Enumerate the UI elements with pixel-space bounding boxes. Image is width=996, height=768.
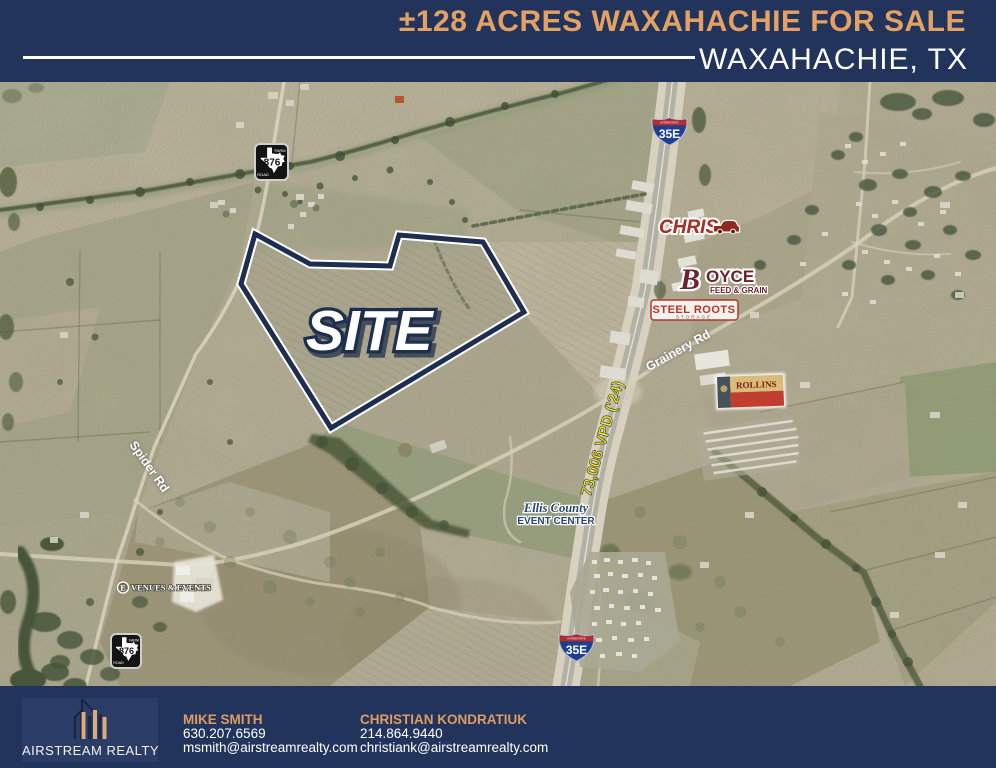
svg-text:CHRIS: CHRIS	[659, 217, 718, 238]
svg-text:VENUES & EVENTS: VENUES & EVENTS	[131, 583, 211, 593]
svg-text:ROLLINS: ROLLINS	[736, 379, 777, 390]
svg-text:35E: 35E	[659, 127, 680, 141]
svg-text:ROAD: ROAD	[113, 661, 124, 665]
svg-text:876: 876	[119, 646, 134, 656]
svg-text:Ellis County: Ellis County	[523, 501, 589, 515]
svg-text:STORAGE: STORAGE	[676, 315, 712, 320]
svg-text:E: E	[120, 584, 125, 593]
svg-text:INTERSTATE: INTERSTATE	[567, 637, 585, 641]
svg-text:OYCE: OYCE	[706, 267, 754, 286]
svg-text:ROAD: ROAD	[257, 172, 269, 177]
svg-text:B: B	[679, 263, 700, 296]
svg-text:EVENT CENTER: EVENT CENTER	[517, 516, 595, 527]
svg-text:35E: 35E	[566, 643, 587, 657]
svg-text:SITE: SITE	[306, 299, 435, 363]
svg-text:INTERSTATE: INTERSTATE	[660, 121, 678, 125]
svg-text:FARM: FARM	[274, 148, 285, 153]
svg-text:FARM: FARM	[129, 639, 139, 643]
svg-text:876: 876	[264, 158, 281, 169]
svg-text:FEED & GRAIN: FEED & GRAIN	[710, 286, 768, 295]
